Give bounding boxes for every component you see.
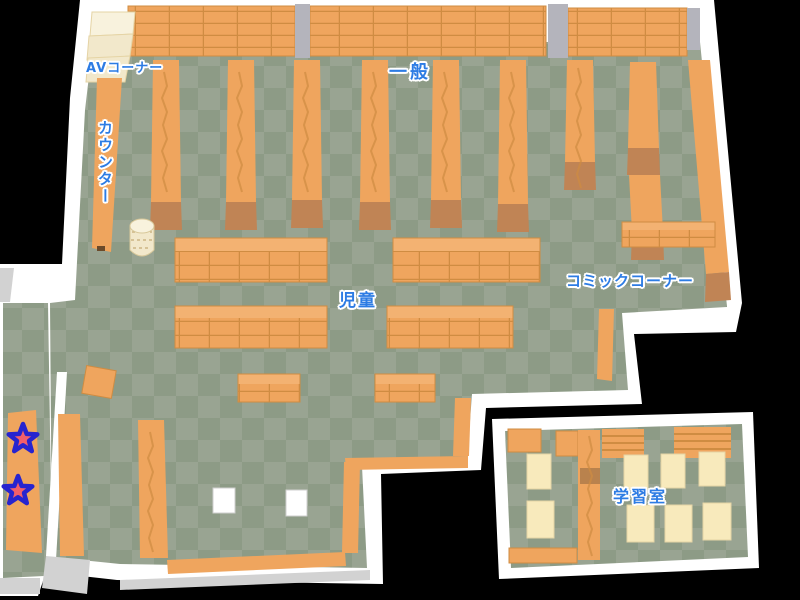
aisle-bottom-shade — [0, 578, 40, 594]
label-comic-corner: コミックコーナー — [566, 270, 694, 291]
label-study-room: 学習室 — [613, 483, 667, 507]
pillar — [548, 4, 568, 58]
bookshelf — [568, 8, 687, 56]
bookshelf — [375, 374, 435, 402]
bookshelf — [138, 420, 168, 558]
bottom-left-wall-shade — [42, 556, 90, 594]
bookshelf — [58, 414, 84, 556]
bookshelf — [387, 306, 513, 348]
study-desk — [627, 505, 654, 542]
floor-map-canvas — [0, 0, 800, 600]
table — [213, 488, 235, 513]
table — [286, 490, 307, 516]
study-desk — [527, 454, 551, 489]
pillar — [687, 8, 700, 50]
bookshelf — [310, 6, 546, 56]
bookshelf — [556, 431, 578, 456]
bookshelf — [453, 398, 471, 456]
counter-detail — [97, 246, 105, 251]
bookshelf — [622, 222, 715, 247]
label-general: 一般 — [389, 58, 431, 84]
bookshelf — [175, 238, 327, 282]
bookshelf — [345, 456, 468, 470]
study-desk — [665, 505, 692, 542]
label-children: 児童 — [339, 286, 377, 311]
bookshelf — [175, 306, 327, 348]
pillar — [295, 4, 310, 58]
label-counter: カウンター — [95, 120, 116, 205]
bookshelf — [393, 238, 540, 282]
cylinder-pillar — [130, 219, 154, 256]
bookshelf — [508, 429, 541, 452]
bookshelf — [342, 462, 360, 553]
study-desk — [527, 501, 554, 538]
magazine-rack — [602, 429, 644, 458]
reading-table — [82, 366, 116, 399]
bookshelf — [128, 6, 295, 56]
bookshelf — [597, 309, 614, 381]
label-av-corner: AVコーナー — [86, 57, 163, 76]
bookshelf — [238, 374, 300, 402]
study-desk — [699, 452, 725, 486]
library-floor-map: AVコーナー 一般 カウンター 児童 コミックコーナー 学習室 — [0, 0, 800, 600]
bookshelf — [509, 548, 577, 563]
study-desk — [703, 503, 731, 540]
wall-bookshelves-top — [128, 4, 700, 58]
